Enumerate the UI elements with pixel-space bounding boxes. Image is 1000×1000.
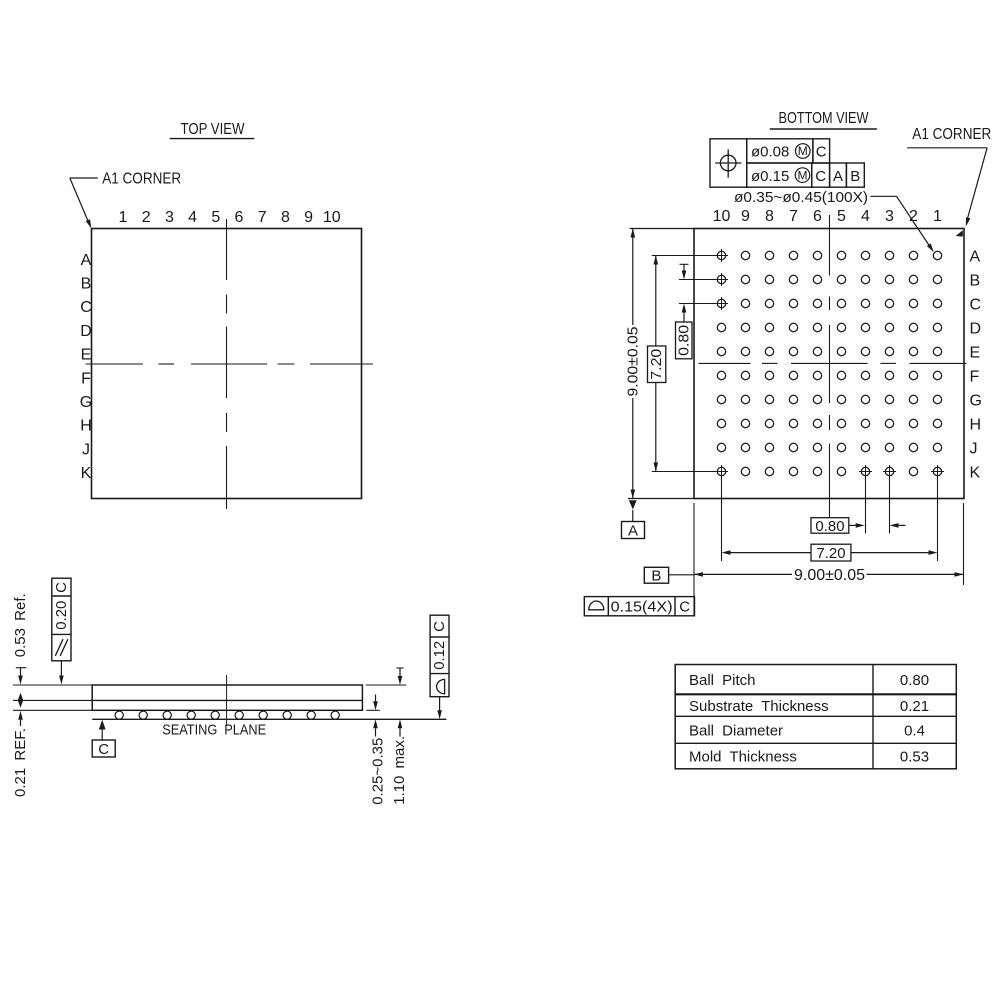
svg-text:5: 5: [211, 209, 220, 226]
svg-text:9: 9: [741, 208, 750, 225]
svg-text:D: D: [970, 320, 982, 337]
svg-text:A: A: [628, 523, 638, 540]
svg-text:7.20: 7.20: [648, 349, 665, 380]
svg-text:SEATING PLANE: SEATING PLANE: [162, 722, 266, 739]
svg-text:3: 3: [885, 208, 894, 225]
svg-text:C: C: [53, 582, 70, 593]
svg-text:B: B: [81, 276, 92, 293]
svg-text:B: B: [850, 168, 860, 185]
svg-text:C: C: [679, 599, 690, 616]
svg-text:G: G: [970, 392, 982, 409]
svg-text:B: B: [970, 272, 981, 289]
svg-text:F: F: [81, 370, 91, 387]
svg-text:A1 CORNER: A1 CORNER: [102, 171, 181, 188]
svg-text:H: H: [970, 416, 982, 433]
svg-text:0.80: 0.80: [815, 518, 844, 535]
svg-text:Ball Diameter: Ball Diameter: [689, 722, 783, 739]
svg-text:M: M: [798, 144, 808, 158]
svg-text:9.00±0.05: 9.00±0.05: [794, 567, 865, 584]
svg-text:Ball Pitch: Ball Pitch: [689, 672, 756, 689]
svg-text:G: G: [80, 394, 92, 411]
svg-text:ø0.08: ø0.08: [751, 144, 789, 161]
svg-text:0.21 REF.: 0.21 REF.: [12, 728, 29, 797]
svg-text:C: C: [970, 296, 982, 313]
svg-text:C: C: [98, 741, 109, 758]
svg-text:0.4: 0.4: [904, 722, 925, 739]
svg-text:7.20: 7.20: [816, 545, 845, 562]
svg-text:H: H: [80, 418, 92, 435]
svg-text:4: 4: [861, 208, 870, 225]
svg-text:Mold Thickness: Mold Thickness: [689, 749, 797, 766]
svg-text:M: M: [798, 168, 808, 182]
svg-text:0.80: 0.80: [675, 325, 692, 356]
svg-text:ø0.15: ø0.15: [751, 168, 789, 185]
svg-text:0.53: 0.53: [900, 749, 929, 766]
svg-text:9: 9: [304, 209, 313, 226]
svg-text:0.80: 0.80: [900, 672, 929, 689]
svg-text:C: C: [80, 299, 92, 316]
svg-text:7: 7: [258, 209, 267, 226]
svg-text:F: F: [970, 368, 980, 385]
svg-text:TOP VIEW: TOP VIEW: [181, 121, 246, 138]
svg-text:J: J: [970, 440, 978, 457]
svg-text:Substrate Thickness: Substrate Thickness: [689, 698, 829, 715]
svg-text:1: 1: [933, 208, 942, 225]
svg-text:A: A: [970, 248, 981, 265]
svg-text:0.21: 0.21: [900, 698, 929, 715]
svg-text:7: 7: [789, 208, 798, 225]
svg-text:A: A: [833, 168, 843, 185]
svg-text:C: C: [431, 621, 448, 632]
svg-text:ø0.35~ø0.45(100X): ø0.35~ø0.45(100X): [734, 189, 868, 206]
svg-text:A: A: [81, 252, 92, 269]
svg-text:0.53 Ref.: 0.53 Ref.: [12, 593, 29, 657]
svg-text:10: 10: [713, 208, 731, 225]
svg-text:0.20: 0.20: [53, 601, 70, 630]
svg-text:K: K: [970, 464, 981, 481]
svg-text:0.12: 0.12: [431, 641, 448, 670]
svg-text:E: E: [81, 347, 92, 364]
svg-text:B: B: [651, 568, 661, 585]
svg-text:6: 6: [813, 208, 822, 225]
svg-text:0.15(4X): 0.15(4X): [611, 599, 673, 616]
svg-text:1.10 max.: 1.10 max.: [391, 736, 408, 805]
svg-text:A1 CORNER: A1 CORNER: [912, 126, 991, 143]
svg-text:9.00±0.05: 9.00±0.05: [624, 327, 641, 397]
svg-text:D: D: [80, 323, 92, 340]
svg-text:BOTTOM VIEW: BOTTOM VIEW: [779, 110, 870, 127]
svg-text:4: 4: [188, 209, 197, 226]
svg-text:C: C: [815, 168, 826, 185]
svg-text:2: 2: [142, 209, 151, 226]
svg-text:8: 8: [765, 208, 774, 225]
svg-text:6: 6: [235, 209, 244, 226]
svg-text:K: K: [81, 465, 92, 482]
svg-text:E: E: [970, 344, 981, 361]
svg-text:10: 10: [323, 209, 341, 226]
svg-text:C: C: [816, 144, 827, 161]
svg-text:2: 2: [909, 208, 918, 225]
svg-text:3: 3: [165, 209, 174, 226]
svg-text:0.25~0.35: 0.25~0.35: [370, 738, 387, 805]
svg-text:8: 8: [281, 209, 290, 226]
svg-text:1: 1: [119, 209, 128, 226]
svg-text:J: J: [82, 441, 90, 458]
svg-text:5: 5: [837, 208, 846, 225]
